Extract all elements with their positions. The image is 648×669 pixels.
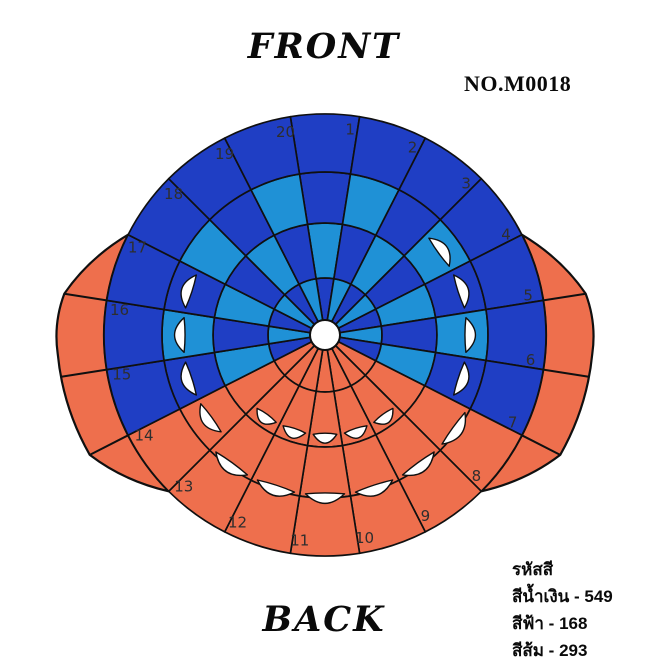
sector-label-1: 1 <box>345 121 355 139</box>
legend-item-navy: สีน้ำเงิน - 549 <box>512 583 613 610</box>
legend-item-sky: สีฟ้า - 168 <box>512 610 613 637</box>
sector-label-5: 5 <box>523 287 533 305</box>
sector-label-7: 7 <box>508 414 518 432</box>
sector-label-18: 18 <box>164 185 183 203</box>
sector-label-14: 14 <box>134 426 153 444</box>
pattern-sheet: FRONT NO.M0018 1234567891011121314151617… <box>0 0 648 669</box>
sector-label-10: 10 <box>355 529 374 547</box>
sector-label-3: 3 <box>461 175 471 193</box>
ring-3-sector-6 <box>436 310 488 361</box>
sector-label-6: 6 <box>526 351 536 369</box>
center-hole <box>310 320 340 350</box>
sector-label-2: 2 <box>408 138 418 156</box>
sector-label-13: 13 <box>174 477 193 495</box>
ring-3-sector-1 <box>300 172 351 224</box>
sector-label-20: 20 <box>276 123 295 141</box>
sector-label-16: 16 <box>110 301 129 319</box>
sector-label-9: 9 <box>421 507 431 525</box>
sector-label-11: 11 <box>290 532 309 550</box>
legend-item-orange: สีส้ม - 293 <box>512 637 613 664</box>
legend-heading: รหัสสี <box>512 556 613 583</box>
sector-label-4: 4 <box>501 226 511 244</box>
sector-label-8: 8 <box>472 467 482 485</box>
sector-label-15: 15 <box>112 366 131 384</box>
ring-4-outer-sector-6 <box>486 300 546 369</box>
sector-label-19: 19 <box>215 145 234 163</box>
color-legend: รหัสสี สีน้ำเงิน - 549สีฟ้า - 168สีส้ม -… <box>512 556 613 664</box>
sector-label-12: 12 <box>228 514 247 532</box>
ring-3-sector-11 <box>300 446 351 498</box>
ring-3-sector-16 <box>162 310 214 361</box>
sector-label-17: 17 <box>128 239 147 257</box>
